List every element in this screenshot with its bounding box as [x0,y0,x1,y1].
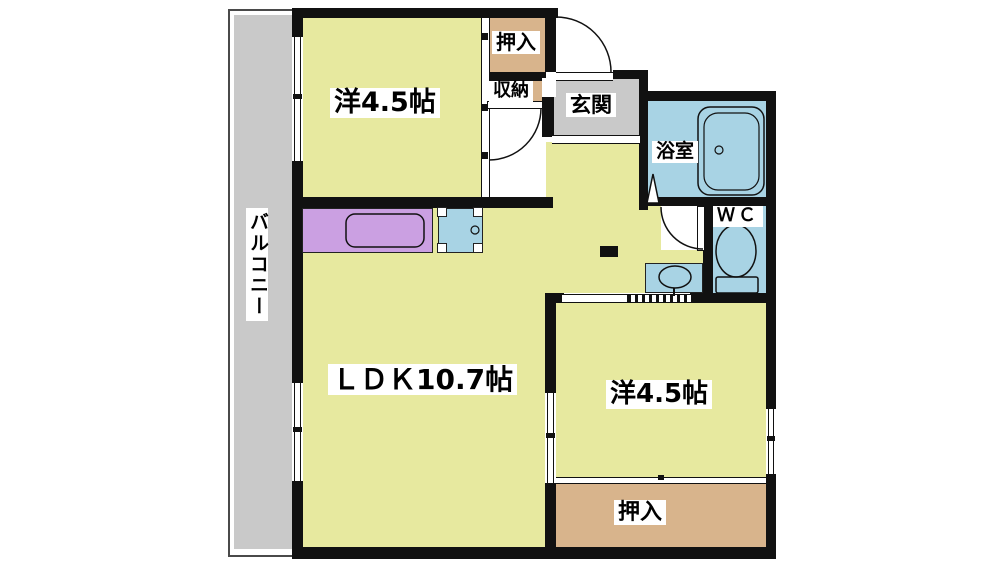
slider-ldk-room2-tick [546,433,555,438]
stove-burner-br [473,243,483,253]
label-western-room-top: 洋4.5帖 [330,88,440,118]
wall-room2-left-b [545,480,556,547]
label-bathroom: 浴室 [652,141,698,163]
window-left-lower [292,380,303,484]
closet-slider-tick-3 [481,152,488,159]
slider-room2-closet-tick [658,475,664,480]
wall-bottom [292,547,776,559]
window-left-upper-tick [293,94,302,99]
label-shuno: 収納 [489,81,533,102]
slider-corridor-room2 [562,294,627,303]
corridor-upper [546,142,639,206]
kitchen-counter [302,208,433,253]
wall-right-a [766,93,776,406]
window-right-tick [767,436,775,441]
wall-bath-top [639,91,776,101]
wall-right-b [766,471,776,559]
stove-burner-tr [473,207,483,217]
wash-basin-unit [645,263,703,293]
label-genkan: 玄関 [566,93,616,117]
genkan-step-threshold [552,135,640,144]
window-left-lower-tick [293,427,302,432]
wall-room2-top-right [690,293,776,303]
wall-top [296,8,558,18]
floor-plan: バルコニー 洋4.5帖 押入 収納 玄関 浴室 ＷＣ ＬＤＫ10.7帖 洋4.5… [0,0,1000,562]
closet-slider-tick-1 [481,33,488,40]
wall-kitchen [296,197,553,208]
label-wc: ＷＣ [713,206,763,227]
hall-door-leaf [487,101,543,109]
stove-burner-bl [437,243,447,253]
wc-door-leaf [697,206,705,251]
wall-room2-left-a [545,293,556,390]
label-oshiire-top: 押入 [492,31,540,54]
wall-genkan-left [542,97,554,137]
accordion-door-room2 [627,294,692,303]
wall-nook-stub [600,246,618,257]
label-ldk: ＬＤＫ10.7帖 [328,364,517,395]
window-right [766,406,776,477]
entrance-door-arc [556,17,611,72]
label-balcony: バルコニー [246,208,268,321]
genkan-entry-threshold [556,72,613,81]
window-left-upper [292,34,303,164]
wall-left-a [292,8,303,34]
label-oshiire-bottom: 押入 [614,500,666,525]
stove-burner-tl [437,207,447,217]
hall-door-zone [487,108,544,197]
slider-ldk-room2 [545,390,556,486]
wall-left-b [292,158,303,380]
label-western-room-bottom: 洋4.5帖 [606,380,712,409]
opening-genkan-side [542,78,556,97]
wall-entry-left [545,8,556,72]
